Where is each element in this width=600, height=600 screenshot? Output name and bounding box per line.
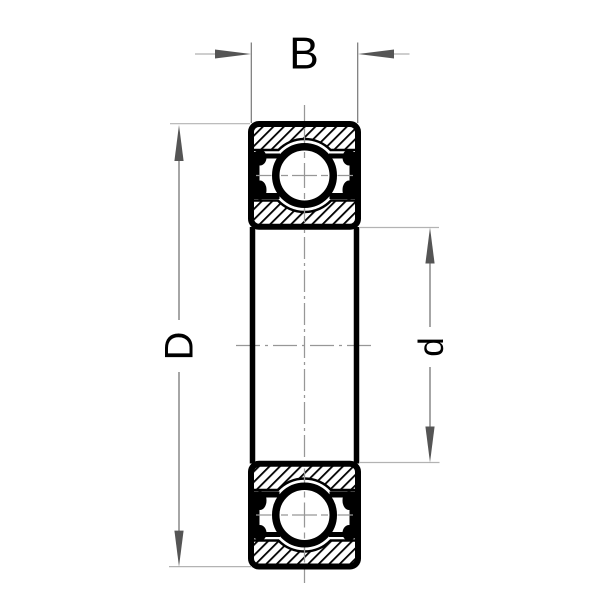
svg-text:d: d — [412, 337, 451, 356]
svg-text:D: D — [158, 332, 202, 361]
svg-text:B: B — [289, 30, 319, 79]
